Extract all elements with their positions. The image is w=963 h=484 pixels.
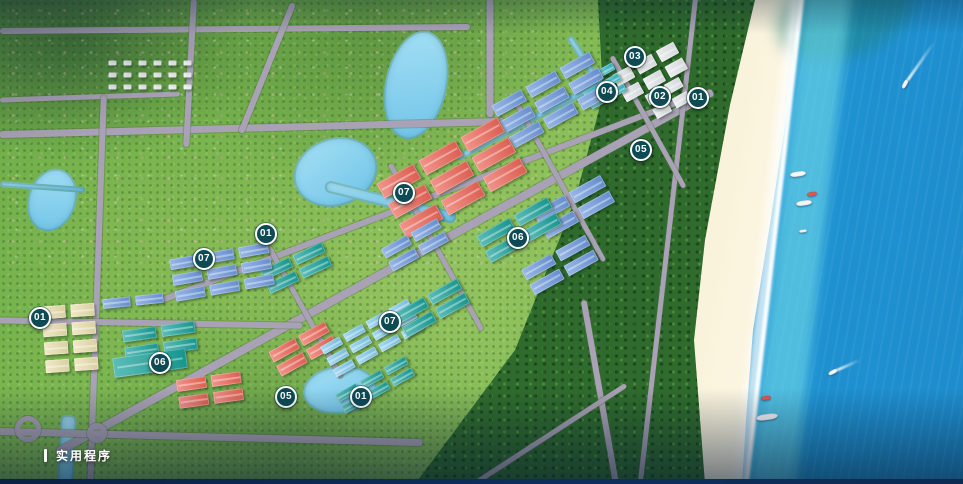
map-marker-02[interactable]: 02 (649, 86, 671, 108)
masterplan-map: 0304020105070106070107060501 实用程序 (0, 0, 963, 484)
map-marker-01[interactable]: 01 (687, 87, 709, 109)
building-block (154, 61, 162, 66)
building-block (45, 359, 70, 374)
building-block (71, 321, 96, 336)
building-block (241, 258, 272, 274)
building-block (169, 61, 177, 66)
building-block (74, 357, 99, 372)
building-block (73, 339, 98, 354)
building-block (172, 270, 203, 286)
map-marker-07[interactable]: 07 (193, 248, 215, 270)
building-block (169, 73, 177, 78)
map-marker-05[interactable]: 05 (630, 139, 652, 161)
building-block (70, 303, 95, 318)
building-block (109, 61, 117, 66)
building-block (139, 73, 147, 78)
building-block (109, 85, 117, 90)
building-block (109, 73, 117, 78)
building-block (169, 85, 177, 90)
building-block (184, 85, 192, 90)
map-marker-06[interactable]: 06 (507, 227, 529, 249)
building-block (139, 85, 147, 90)
road-segment (487, 0, 494, 117)
building-block (124, 61, 132, 66)
map-marker-03[interactable]: 03 (624, 46, 646, 68)
roundabout (87, 423, 107, 443)
building-block (184, 61, 192, 66)
building-block (184, 73, 192, 78)
section-label-text: 实用程序 (56, 447, 112, 464)
building-block (176, 376, 207, 392)
building-block (44, 341, 69, 356)
label-accent-bar (44, 449, 47, 462)
map-marker-01[interactable]: 01 (350, 386, 372, 408)
roundabout (15, 416, 41, 442)
map-marker-07[interactable]: 07 (379, 311, 401, 333)
building-block (210, 371, 241, 387)
building-block (154, 85, 162, 90)
building-block (124, 85, 132, 90)
map-marker-06[interactable]: 06 (149, 352, 171, 374)
map-marker-01[interactable]: 01 (255, 223, 277, 245)
building-block (154, 73, 162, 78)
building-block (139, 61, 147, 66)
map-marker-07[interactable]: 07 (393, 182, 415, 204)
section-label: 实用程序 (44, 447, 112, 464)
map-marker-04[interactable]: 04 (596, 81, 618, 103)
map-marker-05[interactable]: 05 (275, 386, 297, 408)
building-cluster (109, 61, 192, 90)
building-block (124, 73, 132, 78)
bottom-edge-bar (0, 479, 963, 484)
map-marker-01[interactable]: 01 (29, 307, 51, 329)
